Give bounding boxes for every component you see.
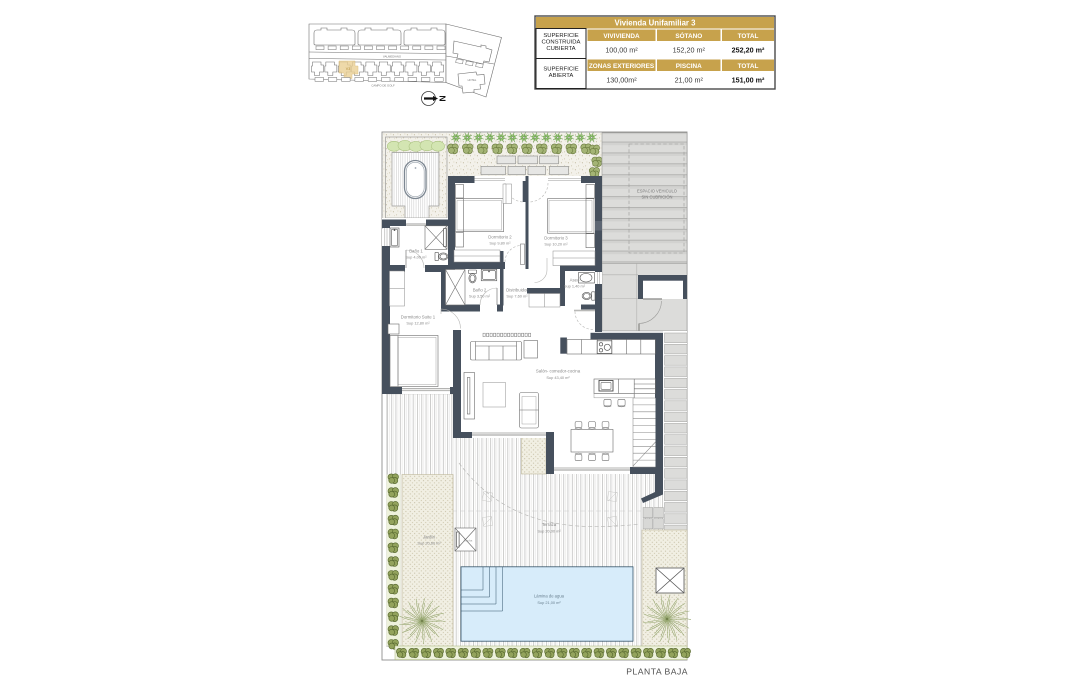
svg-text:Lámina de agua: Lámina de agua [534, 594, 565, 599]
svg-text:Terraza: Terraza [542, 522, 557, 527]
svg-text:ESPACIO VEHICULO: ESPACIO VEHICULO [637, 189, 677, 194]
svg-text:Sup 4,00 m²: Sup 4,00 m² [405, 255, 427, 260]
svg-text:Aseo: Aseo [570, 278, 580, 283]
svg-text:SUPERFICIE: SUPERFICIE [543, 33, 578, 39]
svg-text:252,20 m²: 252,20 m² [732, 46, 765, 55]
svg-text:Sup 10,20 m²: Sup 10,20 m² [544, 242, 568, 247]
svg-text:SUPERFICIE: SUPERFICIE [543, 67, 578, 73]
svg-text:Sup 20,00 m²: Sup 20,00 m² [537, 529, 561, 534]
svg-text:Jardín: Jardín [423, 535, 436, 540]
svg-text:ZONAS EXTERIORES: ZONAS EXTERIORES [589, 63, 655, 70]
svg-text:Dormitorio Suite 1: Dormitorio Suite 1 [401, 315, 436, 320]
svg-text:Ducha: Ducha [464, 539, 473, 543]
svg-text:Sup 12,80 m²: Sup 12,80 m² [406, 321, 430, 326]
svg-text:152,20 m²: 152,20 m² [673, 46, 706, 55]
svg-text:Sup 1,40 m²: Sup 1,40 m² [564, 284, 586, 289]
svg-text:Distribuidor: Distribuidor [506, 288, 528, 293]
svg-text:N: N [438, 95, 448, 101]
svg-text:V3: V3 [346, 67, 350, 71]
svg-text:PISCINA: PISCINA [676, 63, 702, 70]
svg-text:151,00 m²: 151,00 m² [732, 76, 765, 85]
svg-text:TOTAL: TOTAL [738, 63, 759, 70]
svg-text:PLANTA BAJA: PLANTA BAJA [626, 667, 688, 677]
svg-text:ABIERTA: ABIERTA [549, 73, 574, 79]
svg-text:100,00 m²: 100,00 m² [605, 46, 638, 55]
svg-text:Baño 2: Baño 2 [473, 288, 487, 293]
svg-text:Salón- comedor-cocina: Salón- comedor-cocina [536, 369, 581, 374]
svg-text:SÓTANO: SÓTANO [675, 31, 702, 40]
svg-text:130,00m²: 130,00m² [606, 76, 637, 85]
svg-text:SIN CUBRICIÓN: SIN CUBRICIÓN [642, 195, 673, 200]
svg-text:Sup 3,50 m²: Sup 3,50 m² [469, 294, 491, 299]
svg-text:Dormitorio 3: Dormitorio 3 [544, 236, 568, 241]
svg-text:HOTEL: HOTEL [468, 78, 477, 82]
svg-text:Sup 21,00 m²: Sup 21,00 m² [537, 600, 561, 605]
svg-text:CONSTRUIDA: CONSTRUIDA [542, 40, 581, 46]
svg-text:CUBIERTA: CUBIERTA [546, 46, 575, 52]
svg-text:Dormitorio 2: Dormitorio 2 [488, 235, 512, 240]
svg-text:CAMPO DE GOLF: CAMPO DE GOLF [371, 84, 395, 88]
svg-text:Sup 43,40 m²: Sup 43,40 m² [546, 375, 570, 380]
svg-text:TOTAL: TOTAL [738, 33, 759, 40]
svg-text:VIVIVIENDA: VIVIVIENDA [603, 33, 640, 40]
svg-text:VALMEDIANO: VALMEDIANO [383, 55, 402, 59]
svg-text:Sup 9,80 m²: Sup 9,80 m² [489, 241, 511, 246]
svg-text:Sup 7,60 m²: Sup 7,60 m² [506, 294, 528, 299]
svg-text:21,00 m²: 21,00 m² [675, 76, 704, 85]
svg-text:Baño 1: Baño 1 [409, 249, 423, 254]
svg-text:Vivienda Unifamiliar 3: Vivienda Unifamiliar 3 [615, 19, 697, 28]
svg-text:Sup 20,60 m²: Sup 20,60 m² [417, 541, 441, 546]
